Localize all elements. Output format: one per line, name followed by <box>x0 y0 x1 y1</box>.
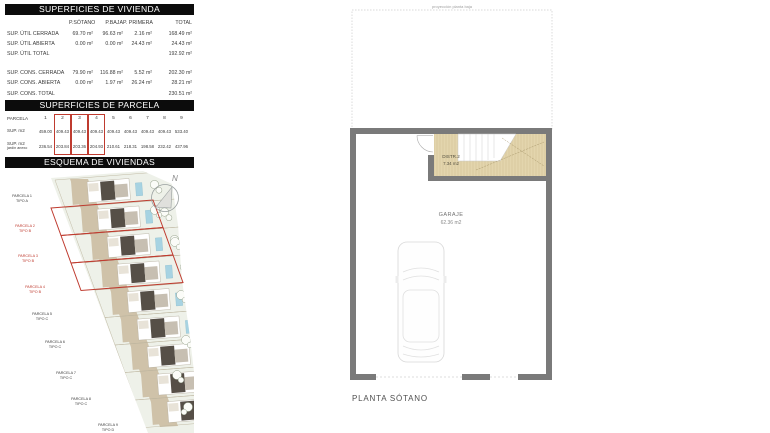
table-row: SUP. CONS. TOTAL 230.51 m² <box>7 88 192 98</box>
title-text: ESQUEMA DE VIVIENDAS <box>44 157 155 167</box>
table-row: SUP. ÚTIL ABIERTA 0.00 m² 0.00 m² 24.43 … <box>7 39 192 49</box>
title-text: SUPERFICIES DE VIVIENDA <box>39 4 160 14</box>
parcel-tipo: TIPO B <box>29 290 42 294</box>
garaje-area: 62.36 m2 <box>441 220 462 226</box>
title-text: SUPERFICIES DE PARCELA <box>39 100 159 110</box>
parcela-table-title: SUPERFICIES DE PARCELA <box>5 100 194 111</box>
vivienda-table: P.SÓTANO P.BAJA P. PRIMERA TOTAL SUP. ÚT… <box>7 18 192 99</box>
ground-floor-projection-outline <box>352 10 552 131</box>
col-pbaja: P.BAJA <box>93 20 123 26</box>
highlight-box-parcela-4 <box>88 114 105 155</box>
parcel-tipo: TIPO C <box>60 376 73 380</box>
parcel-label: PARCELA 3 <box>18 254 38 258</box>
north-label: N <box>172 174 178 183</box>
vivienda-table-title: SUPERFICIES DE VIVIENDA <box>5 4 194 15</box>
highlight-box-parcela-2 <box>54 114 71 155</box>
parcel-tipo: TIPO A <box>16 199 28 203</box>
parcel-label: PARCELA 8 <box>71 397 91 401</box>
distr2-bottom-wall <box>428 176 546 181</box>
distr2-area: 7.34 m2 <box>443 161 459 166</box>
projection-label: proyección planta baja <box>432 4 473 9</box>
parcel-tipo: TIPO D <box>102 428 115 432</box>
esquema-title: ESQUEMA DE VIVIENDAS <box>5 157 194 168</box>
parcel-tipo: TIPO C <box>75 402 88 406</box>
door-swing-icon <box>417 136 433 153</box>
table-row: SUP. ÚTIL CERRADA 69.70 m² 96.63 m² 2.16… <box>7 28 192 38</box>
parcel-label: PARCELA 6 <box>45 340 65 344</box>
col-psotano: P.SÓTANO <box>69 20 93 26</box>
architectural-sheet: SUPERFICIES DE VIVIENDA P.SÓTANO P.BAJA … <box>0 0 770 433</box>
parcel-tipo: TIPO B <box>19 229 32 233</box>
plan-title: PLANTA SÓTANO <box>352 394 428 403</box>
parcel-tipo: TIPO C <box>36 317 49 321</box>
parcel-label: PARCELA 7 <box>56 371 76 375</box>
site-plan: N PARCELA 1 TIPO A PARCELA 2 TIPO B PARC… <box>5 170 194 433</box>
parcel-label: PARCELA 2 <box>15 224 35 228</box>
car-top-view <box>396 242 447 362</box>
left-panel: SUPERFICIES DE VIVIENDA P.SÓTANO P.BAJA … <box>5 4 194 433</box>
parcel-label: PARCELA 9 <box>98 423 118 427</box>
table-row: SUP. CONS. CERRADA 79.90 m² 116.88 m² 5.… <box>7 68 192 78</box>
parcel-tipo: TIPO B <box>22 259 35 263</box>
col-pprimera: P. PRIMERA <box>123 20 152 26</box>
parcela-table: PARCELA 1 2 3 4 5 6 7 8 9 SUP. m2 459.00… <box>5 113 194 157</box>
floor-plan: proyección planta baja DISTR.2 <box>340 0 570 433</box>
parcel-label: PARCELA 5 <box>32 312 52 316</box>
parcel-tipo: TIPO C <box>49 345 62 349</box>
garaje-label: GARAJE <box>439 212 464 218</box>
table-row: SUP. CONS. ABIERTA 0.00 m² 1.97 m² 26.24… <box>7 78 192 88</box>
parcel-label: PARCELA 1 <box>12 194 32 198</box>
distr2-wall-stub <box>428 155 434 176</box>
col-total: TOTAL <box>152 20 192 26</box>
vivienda-header-row: P.SÓTANO P.BAJA P. PRIMERA TOTAL <box>7 18 192 28</box>
parcel-label: PARCELA 4 <box>25 285 45 289</box>
distr2-label: DISTR.2 <box>442 154 460 159</box>
highlight-box-parcela-3 <box>71 114 88 155</box>
table-row: SUP. ÚTIL TOTAL 192.92 m² <box>7 49 192 59</box>
